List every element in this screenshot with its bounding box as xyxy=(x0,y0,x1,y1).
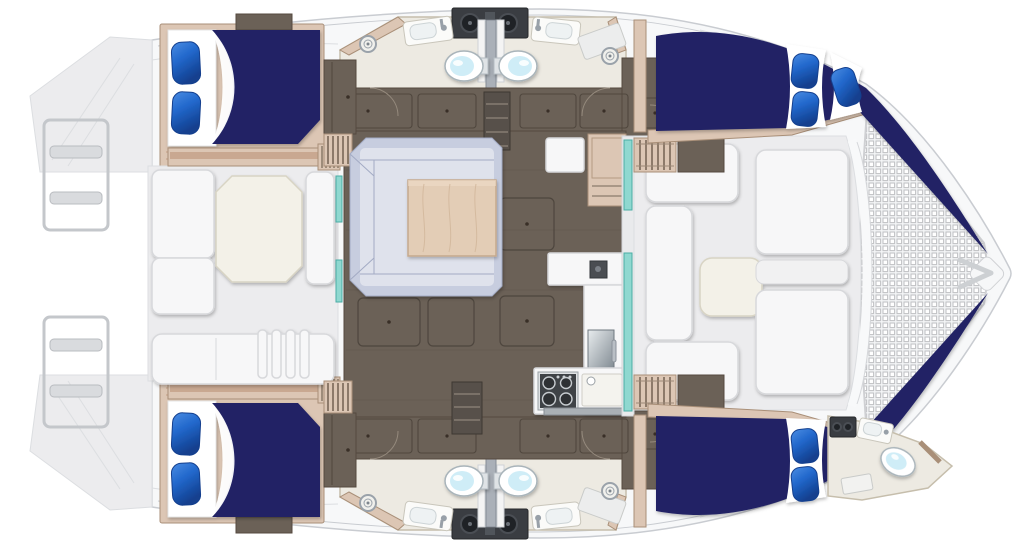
closet-door xyxy=(324,413,356,487)
port-aft-headboard-cabinet xyxy=(236,14,292,30)
fwd-lounge-pad-top xyxy=(756,150,848,254)
heads-divider-wall-top xyxy=(478,20,504,88)
port-aft-cabin xyxy=(160,14,324,170)
starboard-aft-headboard-cabinet xyxy=(236,517,292,533)
burner-icon xyxy=(543,393,556,406)
burner-icon xyxy=(560,393,572,405)
galley-counter-top-bar xyxy=(548,253,626,285)
pillow xyxy=(790,428,819,465)
pillow xyxy=(790,91,819,128)
salon-forward-wall xyxy=(622,136,634,416)
salon-table xyxy=(408,180,496,256)
bow-head-equipment xyxy=(830,417,856,437)
forward-cockpit xyxy=(634,136,872,410)
aft-closet-and-steps-port xyxy=(324,60,356,166)
pillow xyxy=(171,462,201,505)
port-ladder-rung-1 xyxy=(50,146,102,158)
lounge-armrest-4 xyxy=(300,330,309,378)
shower-drain-icon xyxy=(602,48,618,64)
aft-cockpit-furniture xyxy=(152,170,334,384)
starboard-ladder-rung-2 xyxy=(50,385,102,397)
shower-drain-icon xyxy=(360,36,376,52)
port-transom xyxy=(30,37,152,230)
lounge-armrest-1 xyxy=(258,330,267,378)
port-ladder-rung-2 xyxy=(50,192,102,204)
galley-sink-module xyxy=(582,374,622,406)
galley-stove xyxy=(538,372,578,410)
cockpit-bench-left-upper xyxy=(152,170,214,258)
bow-locker-port xyxy=(678,138,724,172)
fwd-cockpit-table xyxy=(700,258,762,316)
dish-drawer xyxy=(544,408,622,415)
heads-divider-wall-bottom xyxy=(478,459,504,527)
fwd-bench-left xyxy=(646,206,692,340)
forward-window-glass xyxy=(624,140,632,210)
pillow xyxy=(790,466,819,503)
cockpit-bench-right xyxy=(306,172,334,284)
vanity-sink-starboard-fwd xyxy=(531,502,581,531)
pillow xyxy=(171,91,201,134)
aft-closet-and-steps-starboard xyxy=(324,381,356,487)
aft-window-glass xyxy=(336,260,342,302)
starboard-bow-head xyxy=(828,416,952,500)
pillow xyxy=(171,41,201,84)
pillow xyxy=(171,412,201,455)
starboard-transom xyxy=(30,317,152,510)
aft-cockpit xyxy=(148,144,340,403)
floorplan-stage: Catamaran yacht deck floor plan (top-dow… xyxy=(0,0,1024,547)
floorplan-canvas: Catamaran yacht deck floor plan (top-dow… xyxy=(0,0,1024,547)
fwd-lounge-pad-mid xyxy=(756,260,848,284)
cockpit-bench-left-lower xyxy=(152,258,214,314)
companionway-steps-starboard-mid xyxy=(452,382,482,434)
aft-sliding-door-glass xyxy=(336,176,342,222)
faucet-icon xyxy=(587,377,595,385)
aft-cockpit-step-strip-port xyxy=(168,144,340,170)
closet-door xyxy=(324,60,356,134)
oven-handle xyxy=(612,340,616,362)
lounge-armrest-2 xyxy=(272,330,281,378)
burner-icon xyxy=(561,378,572,389)
burner-icon xyxy=(543,377,555,389)
starboard-aft-cabin xyxy=(160,377,324,533)
shower-drain-icon xyxy=(602,483,618,499)
starboard-ladder-rung-1 xyxy=(50,339,102,351)
galley-oven xyxy=(588,330,616,372)
cabin-wall xyxy=(634,415,646,527)
port-aft-berth xyxy=(168,30,320,146)
shower-drain-icon xyxy=(360,495,376,511)
nav-cabinet xyxy=(588,134,626,206)
starboard-aft-berth xyxy=(168,401,320,517)
fwd-lounge-pad-bottom xyxy=(756,290,848,394)
forward-sliding-door-glass xyxy=(624,253,632,411)
cabin-wall xyxy=(634,20,646,132)
cockpit-dining-table xyxy=(216,176,302,282)
pillow xyxy=(790,53,819,90)
dial-icon xyxy=(844,423,852,431)
dial-icon xyxy=(833,423,841,431)
lounge-armrest-3 xyxy=(286,330,295,378)
bow-locker-starboard xyxy=(678,375,724,409)
vanity-sink-port-fwd xyxy=(531,17,581,46)
nav-seat-box xyxy=(546,138,584,172)
